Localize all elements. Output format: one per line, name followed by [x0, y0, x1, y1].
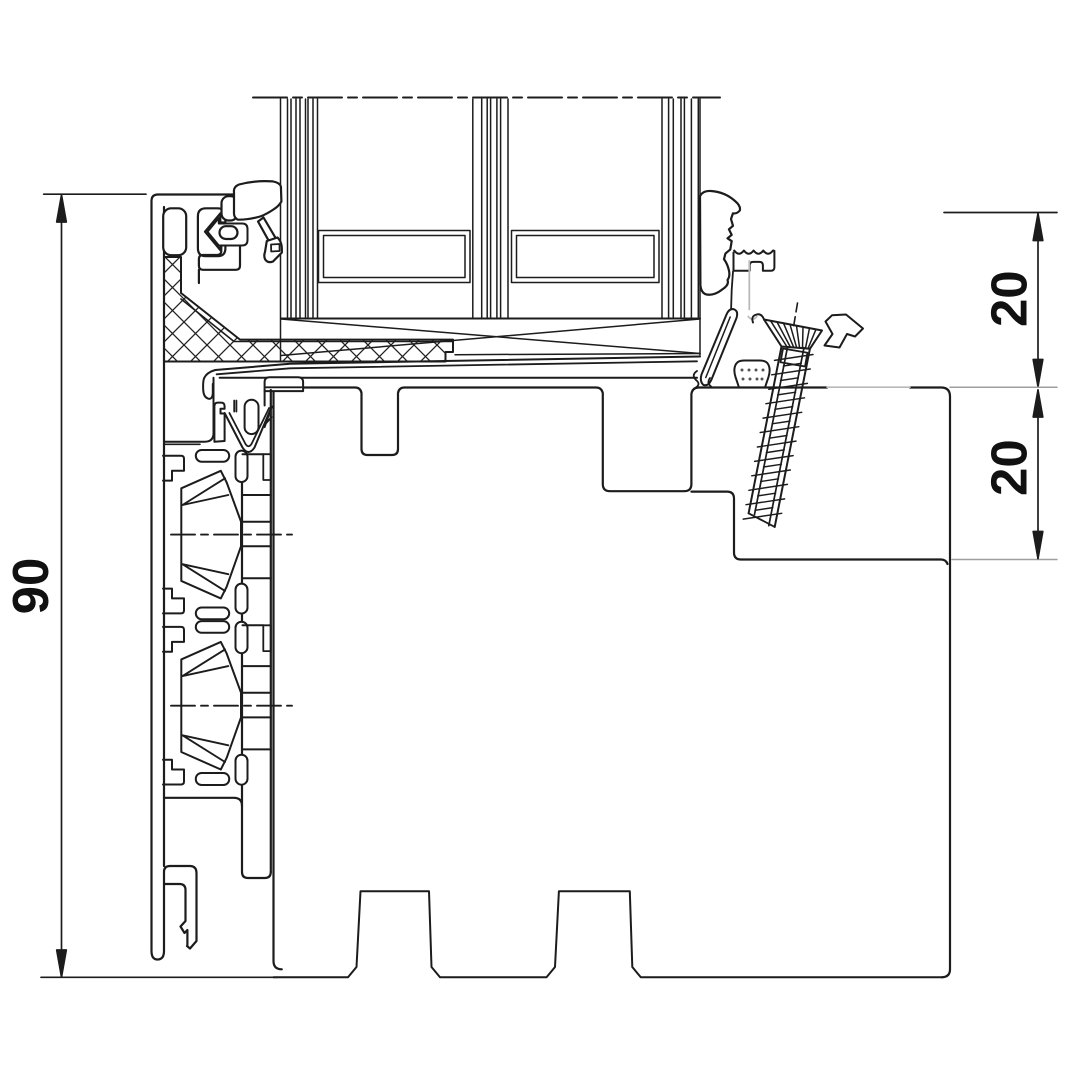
svg-text:20: 20 — [981, 439, 1038, 496]
svg-text:20: 20 — [981, 270, 1038, 327]
svg-text:90: 90 — [2, 558, 59, 615]
